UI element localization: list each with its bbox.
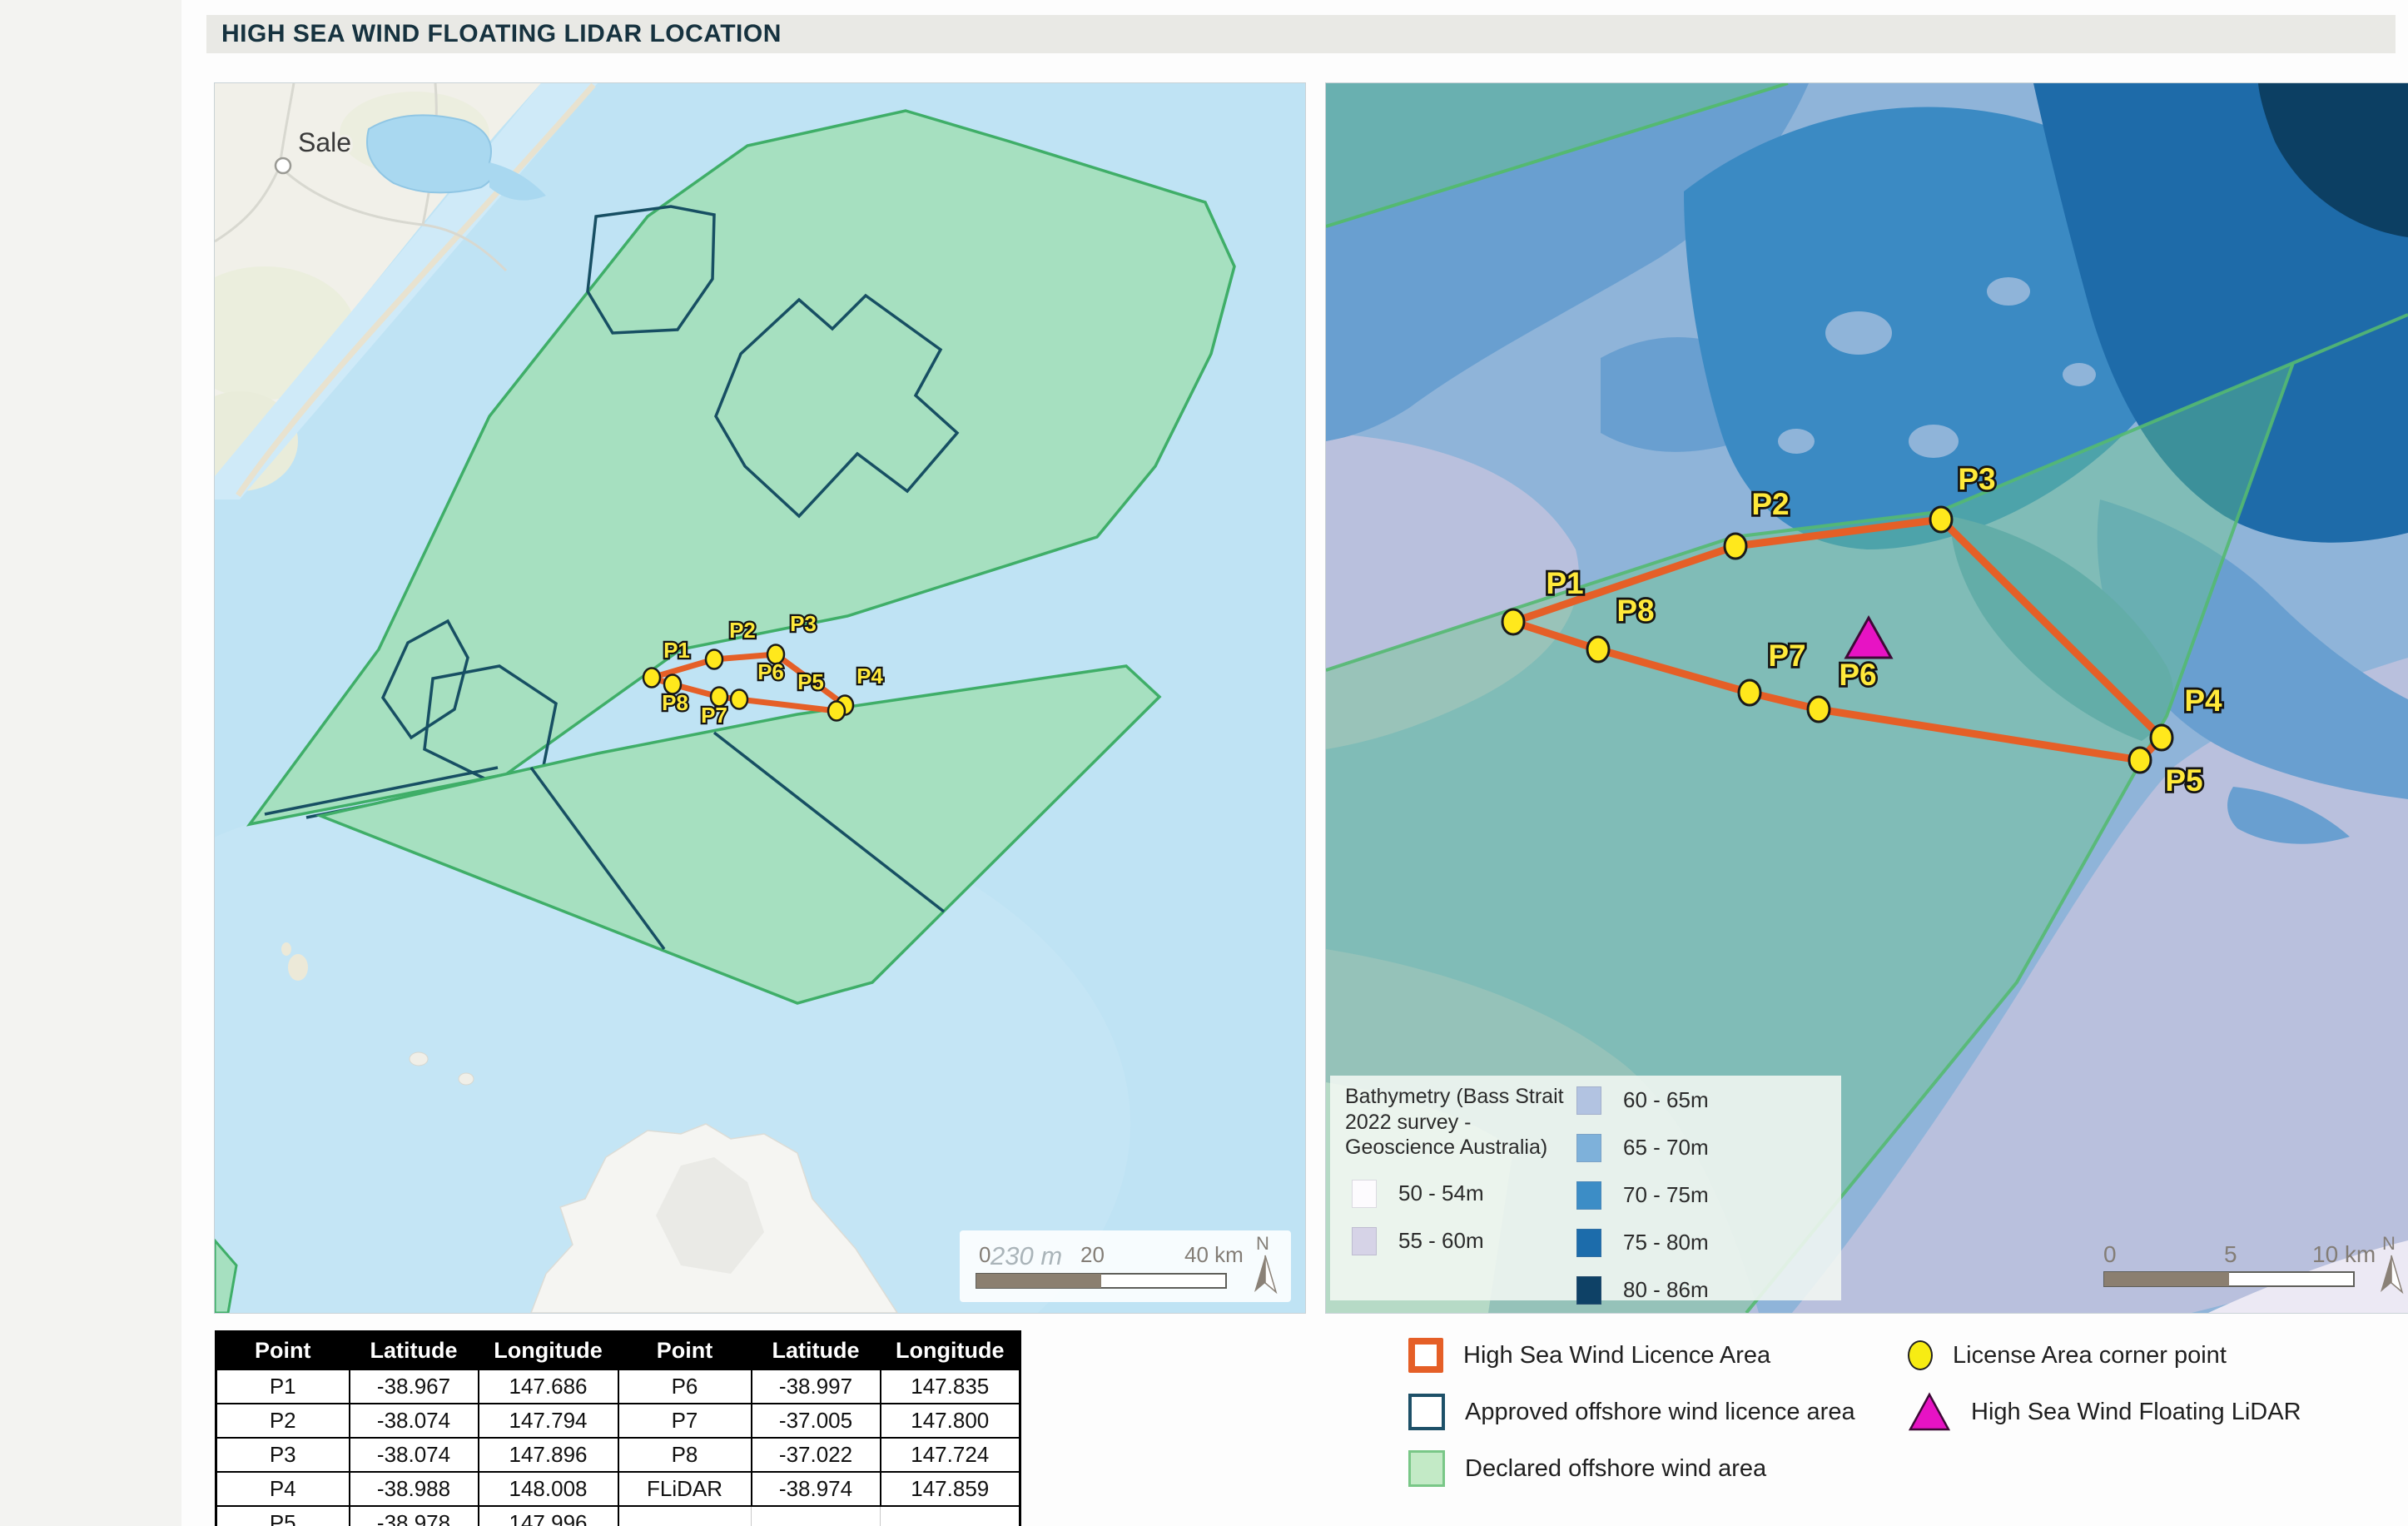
svg-text:10 km: 10 km <box>2312 1241 2376 1267</box>
point-label-P1: P1 <box>663 638 690 663</box>
corner-point-P5 <box>2129 748 2151 773</box>
bathymetry-swatch-icon <box>1576 1181 1601 1210</box>
bathymetry-swatch-icon <box>1576 1276 1601 1305</box>
islet <box>281 942 291 956</box>
table-cell: P4 <box>216 1472 350 1506</box>
point-label-P5: P5 <box>2165 763 2202 798</box>
table-cell: 147.859 <box>881 1472 1020 1506</box>
table-cell: FLiDAR <box>618 1472 752 1506</box>
north-label: N <box>1256 1233 1269 1254</box>
corner-point-P4 <box>2151 725 2172 750</box>
table-cell: -38.074 <box>350 1404 479 1438</box>
table-cell <box>618 1506 752 1526</box>
point-label-P2: P2 <box>1751 487 1789 521</box>
bathymetry-classes-deep: 60 - 65m65 - 70m70 - 75m75 - 80m80 - 86m <box>1576 1081 1709 1318</box>
table-cell: P1 <box>216 1369 350 1404</box>
corner-point-swatch-icon <box>1908 1340 1933 1370</box>
basemap-watermark: 230 m <box>990 1241 1062 1270</box>
svg-text:40 km: 40 km <box>1184 1242 1244 1267</box>
corner-point-P3 <box>1930 507 1952 532</box>
table-cell: -38.988 <box>350 1472 479 1506</box>
corner-point-P7 <box>1739 680 1760 705</box>
left-margin-strip <box>0 0 181 1526</box>
table-cell <box>752 1506 881 1526</box>
north-label: N <box>2382 1233 2396 1254</box>
corner-point-P2 <box>1725 534 1746 559</box>
bathymetry-class-label: 80 - 86m <box>1623 1277 1709 1303</box>
declared-area-swatch-icon <box>1408 1450 1445 1487</box>
table-row: P1-38.967147.686P6-38.997147.835 <box>216 1369 1020 1404</box>
table-cell: -38.967 <box>350 1369 479 1404</box>
point-label-P5: P5 <box>797 669 824 694</box>
table-cell: P5 <box>216 1506 350 1526</box>
flidar-swatch-icon <box>1908 1392 1951 1432</box>
corner-point-P6 <box>1808 697 1830 722</box>
table-cell: -37.005 <box>752 1404 881 1438</box>
column-header: Longitude <box>479 1332 618 1370</box>
detail-map: 0 5 10 km N P1P2P3P4P5P6P7P8 Bathymetry … <box>1326 83 2408 1313</box>
point-label-P6: P6 <box>757 659 784 684</box>
table-cell: -38.978 <box>350 1506 479 1526</box>
bathymetry-class: 50 - 54m <box>1352 1174 1484 1213</box>
table-cell: 148.008 <box>479 1472 618 1506</box>
bathymetry-legend: Bathymetry (Bass Strait 2022 survey - Ge… <box>1330 1076 1841 1300</box>
svg-text:0: 0 <box>2103 1241 2117 1267</box>
approved-area-swatch-icon <box>1408 1394 1445 1430</box>
svg-text:20: 20 <box>1080 1242 1105 1267</box>
bathymetry-swatch-icon <box>1576 1229 1601 1257</box>
bathymetry-class-label: 70 - 75m <box>1623 1182 1709 1208</box>
column-header: Latitude <box>752 1332 881 1370</box>
bathymetry-class-label: 50 - 54m <box>1398 1181 1484 1206</box>
point-label-P3: P3 <box>1958 462 1995 496</box>
table-cell: 147.724 <box>881 1438 1020 1472</box>
legend-item: Approved offshore wind licence area <box>1408 1392 1855 1432</box>
point-label-P4: P4 <box>856 664 883 688</box>
legend-item-label: High Sea Wind Licence Area <box>1463 1342 1770 1369</box>
bathymetry-class: 75 - 80m <box>1576 1223 1709 1262</box>
point-label-P3: P3 <box>790 611 817 636</box>
coordinate-table: PointLatitudeLongitudePointLatitudeLongi… <box>215 1330 1021 1526</box>
table-cell: -38.997 <box>752 1369 881 1404</box>
table-cell: 147.835 <box>881 1369 1020 1404</box>
table-cell: -38.074 <box>350 1438 479 1472</box>
map-legend-areas: High Sea Wind Licence AreaApproved offsh… <box>1408 1335 1855 1505</box>
bathymetry-swatch-icon <box>1352 1180 1377 1208</box>
legend-item-label: High Sea Wind Floating LiDAR <box>1971 1399 2301 1426</box>
point-label-P7: P7 <box>1768 639 1805 673</box>
bathymetry-class-label: 55 - 60m <box>1398 1228 1484 1254</box>
corner-point-P2 <box>706 650 722 669</box>
overview-map: Sale <box>215 83 1305 1313</box>
bathymetry-classes-shallow: 50 - 54m55 - 60m <box>1352 1174 1484 1269</box>
town-label-sale: Sale <box>298 127 351 157</box>
table-cell: P8 <box>618 1438 752 1472</box>
bathymetry-class-label: 60 - 65m <box>1623 1087 1709 1113</box>
report-page: HIGH SEA WIND FLOATING LIDAR LOCATION <box>0 0 2408 1526</box>
table-row: P4-38.988148.008FLiDAR-38.974147.859 <box>216 1472 1020 1506</box>
column-header: Point <box>618 1332 752 1370</box>
table-row: P5-38.978147.996 <box>216 1506 1020 1526</box>
table-row: P3-38.074147.896P8-37.022147.724 <box>216 1438 1020 1472</box>
legend-item: High Sea Wind Licence Area <box>1408 1335 1855 1375</box>
legend-item: High Sea Wind Floating LiDAR <box>1908 1392 2301 1432</box>
point-label-P8: P8 <box>1616 594 1654 628</box>
point-label-P4: P4 <box>2184 683 2222 718</box>
bathymetry-class: 65 - 70m <box>1576 1128 1709 1167</box>
legend-item: License Area corner point <box>1908 1335 2301 1375</box>
islet <box>288 954 308 981</box>
column-header: Latitude <box>350 1332 479 1370</box>
islet <box>410 1052 428 1066</box>
legend-item-label: Declared offshore wind area <box>1465 1455 1766 1483</box>
coordinate-table-wrap: PointLatitudeLongitudePointLatitudeLongi… <box>215 1330 1021 1526</box>
bathymetry-class: 55 - 60m <box>1352 1221 1484 1260</box>
point-label-P6: P6 <box>1839 658 1876 692</box>
islet <box>459 1073 474 1085</box>
table-cell: P7 <box>618 1404 752 1438</box>
svg-text:0: 0 <box>979 1242 991 1267</box>
town-marker-sale <box>276 158 290 173</box>
table-header-row: PointLatitudeLongitudePointLatitudeLongi… <box>216 1332 1020 1370</box>
bathymetry-swatch-icon <box>1352 1227 1377 1255</box>
point-label-P2: P2 <box>729 618 756 643</box>
table-cell: 147.996 <box>479 1506 618 1526</box>
bathymetry-swatch-icon <box>1576 1086 1601 1115</box>
table-cell: 147.686 <box>479 1369 618 1404</box>
scalebar-left: 0 230 m 20 40 km N <box>960 1230 1291 1302</box>
bathymetry-class: 80 - 86m <box>1576 1270 1709 1310</box>
bathymetry-class: 70 - 75m <box>1576 1176 1709 1215</box>
table-cell: 147.896 <box>479 1438 618 1472</box>
page-title: HIGH SEA WIND FLOATING LIDAR LOCATION <box>221 20 782 48</box>
corner-point-P5 <box>828 702 845 721</box>
corner-point-P8 <box>1587 637 1609 662</box>
bathymetry-class-label: 65 - 70m <box>1623 1135 1709 1161</box>
table-cell: -37.022 <box>752 1438 881 1472</box>
point-label-P7: P7 <box>701 703 727 728</box>
map-legend-symbols: License Area corner pointHigh Sea Wind F… <box>1908 1335 2301 1449</box>
corner-point-P1 <box>1502 609 1524 634</box>
column-header: Longitude <box>881 1332 1020 1370</box>
licence-area-swatch-icon <box>1408 1338 1443 1373</box>
legend-item-label: License Area corner point <box>1953 1342 2227 1369</box>
table-cell: P6 <box>618 1369 752 1404</box>
title-bar: HIGH SEA WIND FLOATING LIDAR LOCATION <box>206 15 2396 53</box>
table-cell <box>881 1506 1020 1526</box>
table-cell: P3 <box>216 1438 350 1472</box>
bathymetry-legend-title: Bathymetry (Bass Strait 2022 survey - Ge… <box>1345 1084 1570 1161</box>
legend-item: Declared offshore wind area <box>1408 1449 1855 1489</box>
overview-map-canvas: Sale <box>215 83 1305 1313</box>
column-header: Point <box>216 1332 350 1370</box>
legend-item-label: Approved offshore wind licence area <box>1465 1399 1855 1426</box>
corner-point-P6 <box>731 690 747 709</box>
svg-text:5: 5 <box>2224 1241 2237 1267</box>
table-cell: P2 <box>216 1404 350 1438</box>
corner-point-P1 <box>643 669 660 688</box>
point-label-P1: P1 <box>1546 566 1583 600</box>
table-cell: 147.794 <box>479 1404 618 1438</box>
bathymetry-class-label: 75 - 80m <box>1623 1230 1709 1255</box>
bathymetry-class: 60 - 65m <box>1576 1081 1709 1120</box>
bathymetry-swatch-icon <box>1576 1134 1601 1162</box>
table-row: P2-38.074147.794P7-37.005147.800 <box>216 1404 1020 1438</box>
table-cell: -38.974 <box>752 1472 881 1506</box>
table-cell: 147.800 <box>881 1404 1020 1438</box>
point-label-P8: P8 <box>662 690 688 715</box>
